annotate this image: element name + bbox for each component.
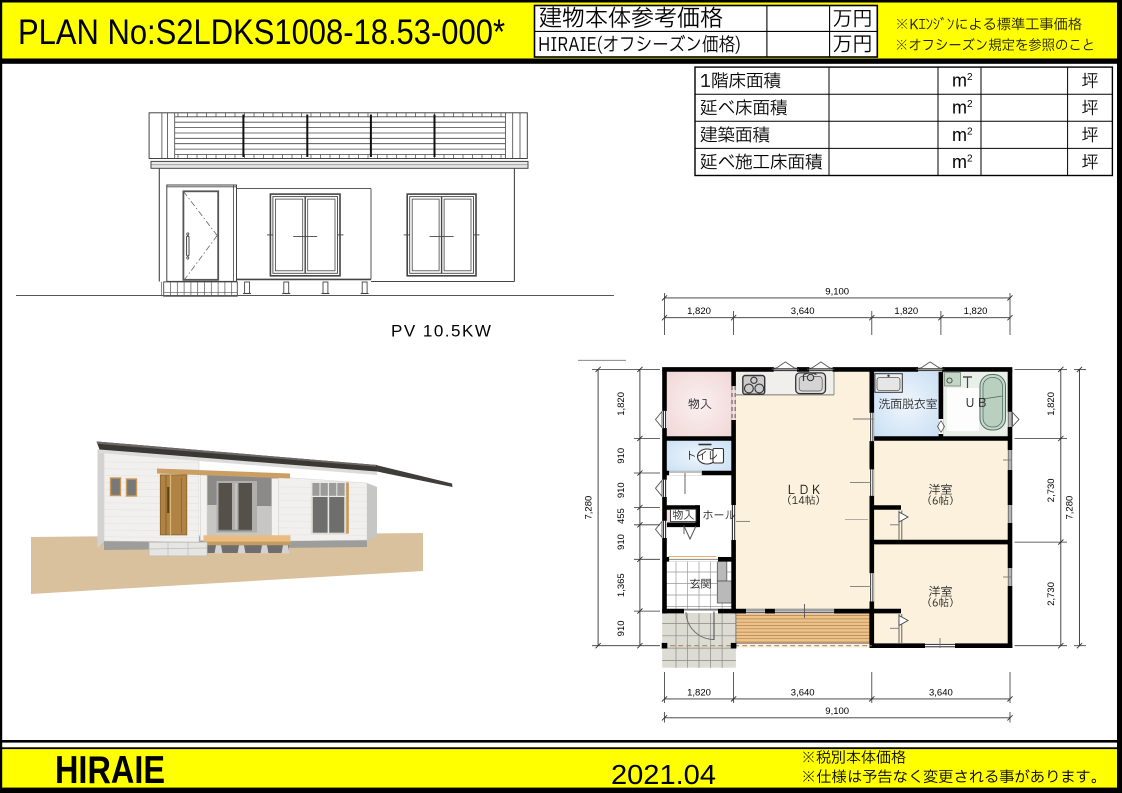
svg-text:910: 910 xyxy=(616,448,627,464)
svg-text:455: 455 xyxy=(616,508,627,524)
svg-text:m: m xyxy=(952,152,967,172)
svg-text:1,365: 1,365 xyxy=(616,573,627,597)
svg-text:PLAN No:S2LDKS1008-18.53-000*: PLAN No:S2LDKS1008-18.53-000* xyxy=(18,13,505,52)
svg-text:910: 910 xyxy=(616,482,627,498)
svg-text:2,730: 2,730 xyxy=(1046,478,1057,502)
svg-text:1,820: 1,820 xyxy=(687,687,711,698)
svg-text:9,100: 9,100 xyxy=(825,706,849,717)
svg-text:2: 2 xyxy=(967,99,973,110)
svg-text:PV 10.5KW: PV 10.5KW xyxy=(391,322,492,341)
svg-text:1,820: 1,820 xyxy=(894,306,918,317)
svg-text:m: m xyxy=(952,125,967,145)
svg-text:2: 2 xyxy=(967,126,973,137)
svg-text:2: 2 xyxy=(967,72,973,83)
svg-text:3,640: 3,640 xyxy=(791,306,815,317)
svg-text:HIRAIE: HIRAIE xyxy=(55,749,165,792)
svg-text:9,100: 9,100 xyxy=(825,286,849,297)
svg-text:2,730: 2,730 xyxy=(1046,582,1057,606)
svg-text:7,280: 7,280 xyxy=(1065,496,1076,520)
svg-text:910: 910 xyxy=(616,534,627,550)
svg-text:m: m xyxy=(952,71,967,91)
svg-text:7,280: 7,280 xyxy=(584,496,595,520)
svg-text:3,640: 3,640 xyxy=(791,687,815,698)
svg-text:3,640: 3,640 xyxy=(929,687,953,698)
svg-text:m: m xyxy=(952,98,967,118)
svg-text:1,820: 1,820 xyxy=(1046,392,1057,416)
svg-text:1,820: 1,820 xyxy=(616,392,627,416)
svg-text:910: 910 xyxy=(616,620,627,636)
svg-text:1,820: 1,820 xyxy=(964,306,988,317)
svg-text:1,820: 1,820 xyxy=(687,306,711,317)
svg-text:2021.04: 2021.04 xyxy=(611,759,716,790)
svg-text:2: 2 xyxy=(967,153,973,164)
